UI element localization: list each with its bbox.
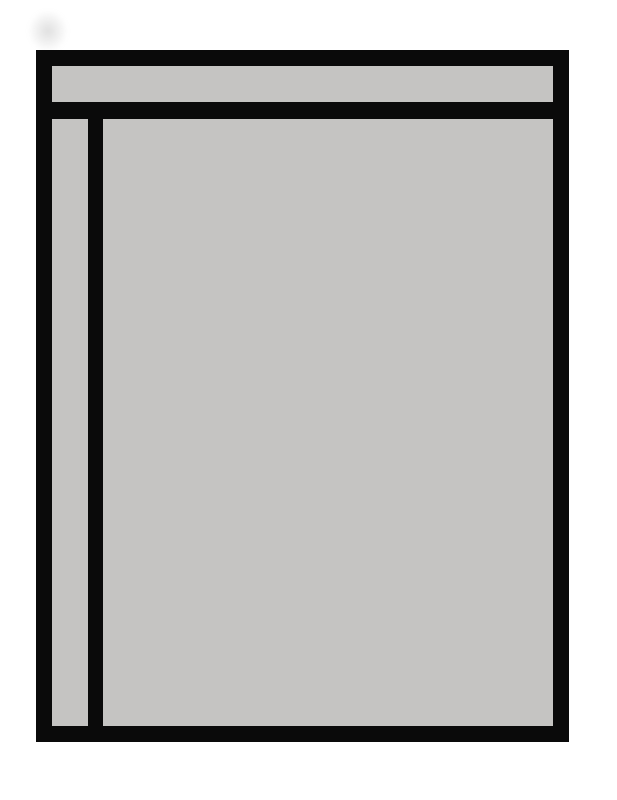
body-row	[52, 119, 553, 726]
header-bar	[52, 66, 553, 102]
sidebar-divider-line	[88, 119, 103, 726]
wireframe-canvas	[0, 0, 617, 800]
corner-smudge-artifact	[28, 10, 68, 52]
content-area	[103, 119, 553, 726]
sidebar	[52, 119, 88, 726]
header-divider-line	[52, 102, 553, 119]
window-frame	[36, 50, 569, 742]
